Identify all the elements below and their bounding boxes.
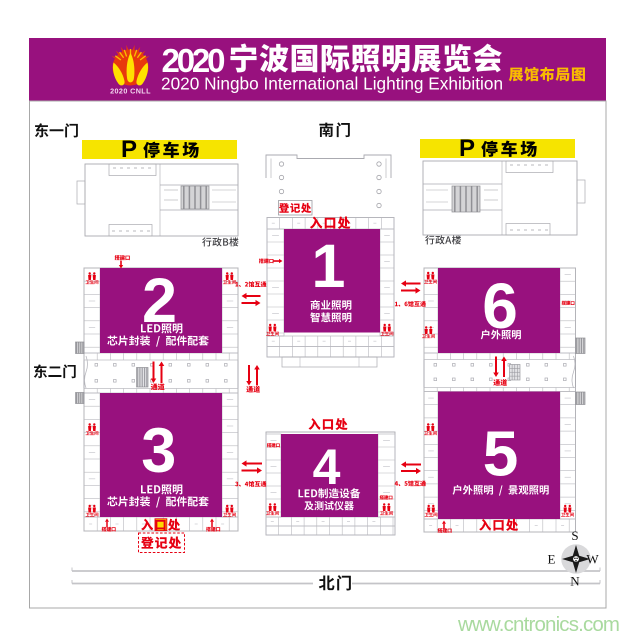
svg-text:P: P (459, 135, 475, 162)
svg-text:E: E (548, 552, 556, 567)
svg-text:P: P (121, 136, 137, 163)
svg-text:3: 3 (141, 416, 176, 486)
svg-text:www.cntronics.com: www.cntronics.com (457, 613, 620, 636)
svg-text:S: S (571, 528, 578, 543)
svg-text:4: 4 (313, 439, 341, 495)
svg-text:1: 1 (312, 232, 346, 300)
svg-text:2020 CNLL: 2020 CNLL (110, 87, 151, 96)
svg-text:2020 Ningbo International Ligh: 2020 Ningbo International Lighting Exhib… (161, 73, 503, 93)
svg-text:N: N (570, 574, 580, 589)
svg-text:5: 5 (483, 418, 519, 490)
svg-text:W: W (586, 552, 599, 567)
